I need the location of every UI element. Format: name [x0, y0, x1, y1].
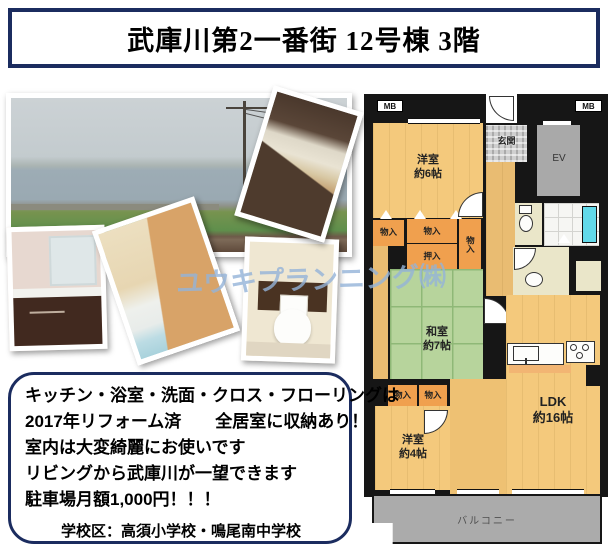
meter-box-left: MB	[377, 100, 403, 112]
side-strip	[373, 246, 388, 379]
elevator-label: EV	[545, 152, 573, 166]
storage-left-label: 物入	[373, 225, 404, 239]
burner-icon	[570, 344, 577, 351]
toilet-floor	[246, 342, 330, 359]
vanity-photo	[6, 225, 107, 352]
vanity-mirror	[49, 235, 98, 286]
western-room-6-label: 洋室 約6帖	[390, 150, 466, 186]
school-district: 学校区：高須小学校・鳴尾南中学校	[25, 520, 337, 541]
storage-vert-label: 物入	[462, 224, 478, 264]
hall	[450, 379, 506, 494]
door-marker	[414, 210, 426, 219]
burner-icon	[576, 352, 583, 359]
toilet-tank-icon	[519, 205, 532, 214]
toilet-bowl	[273, 309, 311, 347]
western-room-4-label: 洋室 約4帖	[384, 430, 442, 466]
sink-faucet	[525, 358, 527, 365]
floorplan: MB MB 洋室 約6帖 玄関 EV 物入 物入 押入 物入 和室 約7帖 LD…	[362, 92, 612, 551]
balcony-label: バルコニー	[457, 512, 517, 527]
balcony: バルコニー	[372, 494, 602, 544]
storage-mid-label: 物入	[407, 224, 457, 238]
counter-front	[509, 365, 571, 373]
japanese-room-label: 和室 約7帖	[407, 322, 467, 358]
toilet-photo	[241, 236, 339, 363]
description-line: 室内は大変綺麗にお使いです	[25, 435, 337, 461]
hall-closet	[576, 261, 601, 291]
description-line: 2017年リフォーム済 全居室に収納あり！	[25, 409, 337, 435]
description-box: キッチン・浴室・洗面・クロス・フローリングは 2017年リフォーム済 全居室に収…	[8, 372, 352, 544]
genkan-label: 玄関	[488, 134, 525, 150]
storage-b2-label: 物入	[419, 389, 447, 401]
door-marker	[380, 210, 392, 219]
description-line: リビングから武庫川が一望できます	[25, 461, 337, 487]
description-line: キッチン・浴室・洗面・クロス・フローリングは	[25, 383, 337, 409]
bathtub-icon	[582, 206, 597, 243]
meter-box-right: MB	[575, 100, 602, 112]
corridor	[486, 162, 515, 296]
bath-door-marker	[558, 234, 570, 243]
oshiire-label: 押入	[407, 249, 457, 263]
description-line: 駐車場月額1,000円！！！	[25, 487, 337, 513]
listing-title-box: 武庫川第2一番街 12号棟 3階	[8, 8, 600, 68]
ldk-label: LDK 約16帖	[517, 392, 589, 428]
wall-block	[586, 365, 601, 386]
burner-icon	[582, 344, 589, 351]
washbasin-icon	[525, 272, 543, 287]
window-top	[408, 118, 480, 124]
listing-title: 武庫川第2一番街 12号棟 3階	[127, 19, 481, 58]
vanity-cabinet	[13, 296, 102, 346]
toilet-bowl-icon	[519, 215, 533, 232]
